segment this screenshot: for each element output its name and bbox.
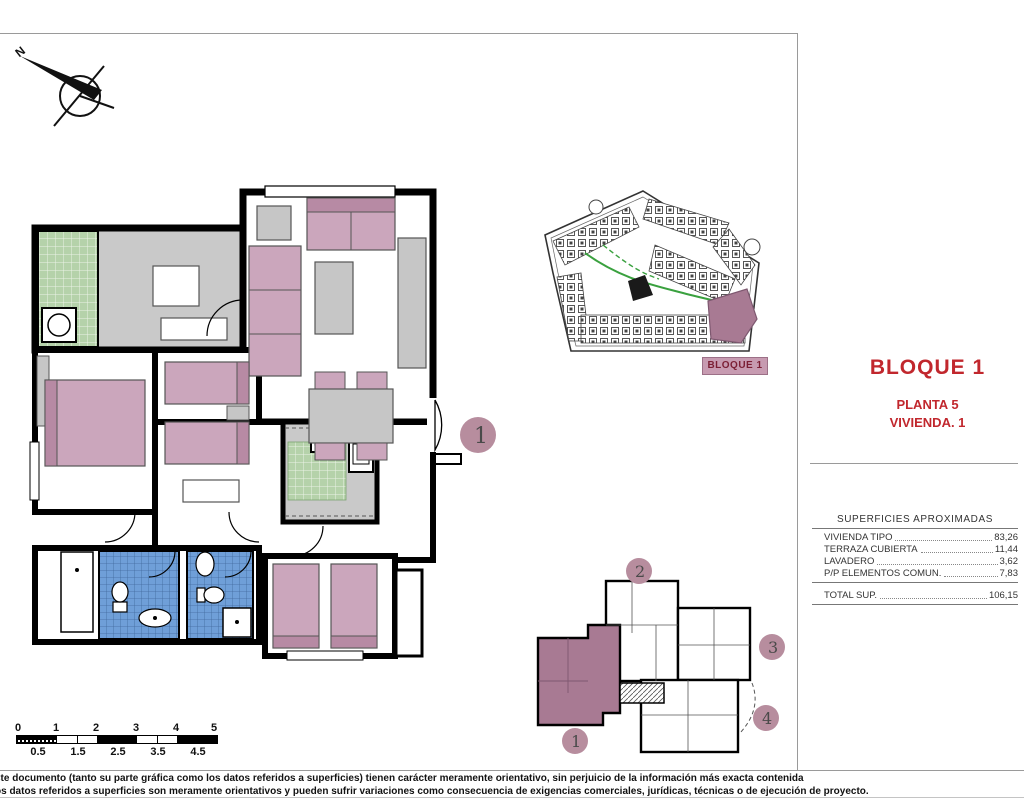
leader-dots	[944, 576, 997, 577]
scale-label: 5	[211, 722, 217, 734]
desk	[183, 480, 239, 502]
dining-table	[309, 389, 393, 443]
title-bloque: BLOQUE 1	[845, 356, 1010, 380]
terrace-table	[153, 266, 199, 306]
row-value: 83,26	[993, 532, 1018, 543]
table-row: VIVIENDA TIPO 83,26	[824, 532, 1018, 543]
scale-label: 0	[15, 722, 21, 734]
sink2	[196, 552, 214, 576]
leader-dots	[877, 564, 997, 565]
row-label: P/P ELEMENTOS COMUN.	[824, 568, 941, 579]
table-rule	[812, 582, 1018, 583]
scale-segment	[137, 736, 177, 743]
roundabout	[744, 239, 760, 255]
door-arc	[105, 512, 135, 542]
entrance-opening	[427, 398, 439, 452]
dining-chair	[315, 443, 345, 460]
bathtub-drain	[75, 568, 79, 572]
north-compass: N	[12, 38, 122, 130]
keyplan-badge-1-number: 1	[571, 732, 581, 751]
sink1-drain	[153, 616, 157, 620]
scale-label: 2.5	[110, 746, 125, 758]
terrace-bench	[161, 318, 227, 340]
toilet1-tank	[113, 602, 127, 612]
side-table	[257, 206, 291, 240]
single-bed	[165, 422, 249, 464]
keyplan-badge-3-number: 3	[768, 638, 778, 657]
floor-key-plan: 2 3 4 1	[528, 553, 796, 765]
scale-midtick	[157, 736, 158, 743]
scale-bottom-labels: 0.5 1.5 2.5 3.5 4.5	[16, 744, 218, 757]
window-band	[30, 442, 39, 500]
leader-dots	[880, 598, 987, 599]
washing-machine	[42, 308, 76, 342]
total-value: 106,15	[988, 590, 1018, 601]
frame-top-line	[0, 33, 797, 34]
row-label: LAVADERO	[824, 556, 874, 567]
roundabout	[589, 200, 603, 214]
dining-chair	[357, 372, 387, 389]
scale-bar: 0 1 2 3 4 5 0.5 1.5 2.5 3.5 4.5	[16, 722, 218, 757]
table-total-row: TOTAL SUP. 106,15	[824, 590, 1018, 601]
single-bed-foot	[237, 422, 249, 464]
single-bed-foot	[237, 362, 249, 404]
single-bed-foot	[273, 636, 319, 648]
bathtub	[61, 552, 93, 632]
single-bed	[273, 564, 319, 648]
areas-table: SUPERFICIES APROXIMADAS VIVIENDA TIPO 83…	[812, 514, 1018, 608]
coffee-table	[315, 262, 353, 334]
sofa-l-shape	[249, 246, 301, 376]
table-rule	[812, 528, 1018, 529]
scale-label: 4.5	[190, 746, 205, 758]
keyplan-unit1-highlight	[538, 625, 620, 725]
leader-dots	[921, 552, 993, 553]
unit-number: 1	[474, 424, 488, 449]
single-bed-foot	[331, 636, 377, 648]
single-bed	[165, 362, 249, 404]
scale-segment	[57, 736, 97, 743]
plan-sheet: N	[0, 0, 1024, 800]
keyplan-badge-2-number: 2	[635, 562, 645, 581]
table-row: LAVADERO 3,62	[824, 556, 1018, 567]
scale-segment	[97, 736, 137, 743]
scale-label: 3	[133, 722, 139, 734]
disclaimer-line-2: os datos referidos a superficies son mer…	[0, 785, 1024, 798]
keyplan-badge-4-number: 4	[762, 709, 772, 728]
sideboard	[398, 238, 426, 368]
scale-label: 3.5	[150, 746, 165, 758]
scale-top-labels: 0 1 2 3 4 5	[16, 722, 218, 735]
disclaimer-line-1: ste documento (tanto su parte gráfica co…	[0, 772, 1024, 785]
scale-segment	[177, 736, 217, 743]
dining-chair	[357, 443, 387, 460]
scale-segment	[17, 736, 57, 743]
window-band	[265, 186, 395, 197]
total-label: TOTAL SUP.	[824, 590, 877, 601]
sofa-two-seat-back	[307, 198, 395, 212]
table-row: TERRAZA CUBIERTA 11,44	[824, 544, 1018, 555]
frame-bottom-line	[0, 770, 1024, 771]
shower-drain	[235, 620, 239, 624]
urbanization-site-plan	[533, 183, 775, 383]
entrance-step	[435, 454, 461, 464]
scale-label: 2	[93, 722, 99, 734]
compass-north-label: N	[13, 44, 28, 60]
dining-chair	[315, 372, 345, 389]
title-block: BLOQUE 1 PLANTA 5 VIVIENDA. 1	[845, 356, 1010, 430]
nightstand	[227, 406, 249, 420]
row-label: TERRAZA CUBIERTA	[824, 544, 918, 555]
leader-dots	[895, 540, 992, 541]
site-plan-block-label: BLOQUE 1	[702, 357, 768, 375]
window-band	[287, 651, 363, 660]
balcony	[396, 570, 422, 656]
keyplan-dashed-boundary	[740, 683, 755, 733]
scale-label: 0.5	[30, 746, 45, 758]
title-vivienda: VIVIENDA. 1	[845, 415, 1010, 430]
double-bed	[45, 380, 145, 466]
single-bed	[331, 564, 377, 648]
disclaimer-text: ste documento (tanto su parte gráfica co…	[0, 772, 1024, 798]
frame-right-divider	[797, 33, 798, 770]
table-row: P/P ELEMENTOS COMUN. 7,83	[824, 568, 1018, 579]
panel-divider-line	[810, 463, 1018, 464]
scale-label: 1.5	[70, 746, 85, 758]
scale-bar-strip	[16, 735, 218, 744]
bathroom1-tiles	[99, 551, 179, 639]
apartment-floor-plan: 1	[15, 150, 520, 690]
keyplan-stair-core	[620, 683, 664, 703]
row-value: 3,62	[999, 556, 1019, 567]
double-bed-headboard	[45, 380, 57, 466]
toilet1-bowl	[112, 582, 128, 602]
title-planta: PLANTA 5	[845, 397, 1010, 412]
table-rule	[812, 604, 1018, 605]
row-value: 11,44	[994, 544, 1018, 555]
scale-midtick	[77, 736, 78, 743]
scale-label: 4	[173, 722, 179, 734]
row-value: 7,83	[999, 568, 1019, 579]
toilet2-bowl	[204, 587, 224, 603]
scale-label: 1	[53, 722, 59, 734]
areas-table-header: SUPERFICIES APROXIMADAS	[812, 514, 1018, 525]
row-label: VIVIENDA TIPO	[824, 532, 892, 543]
